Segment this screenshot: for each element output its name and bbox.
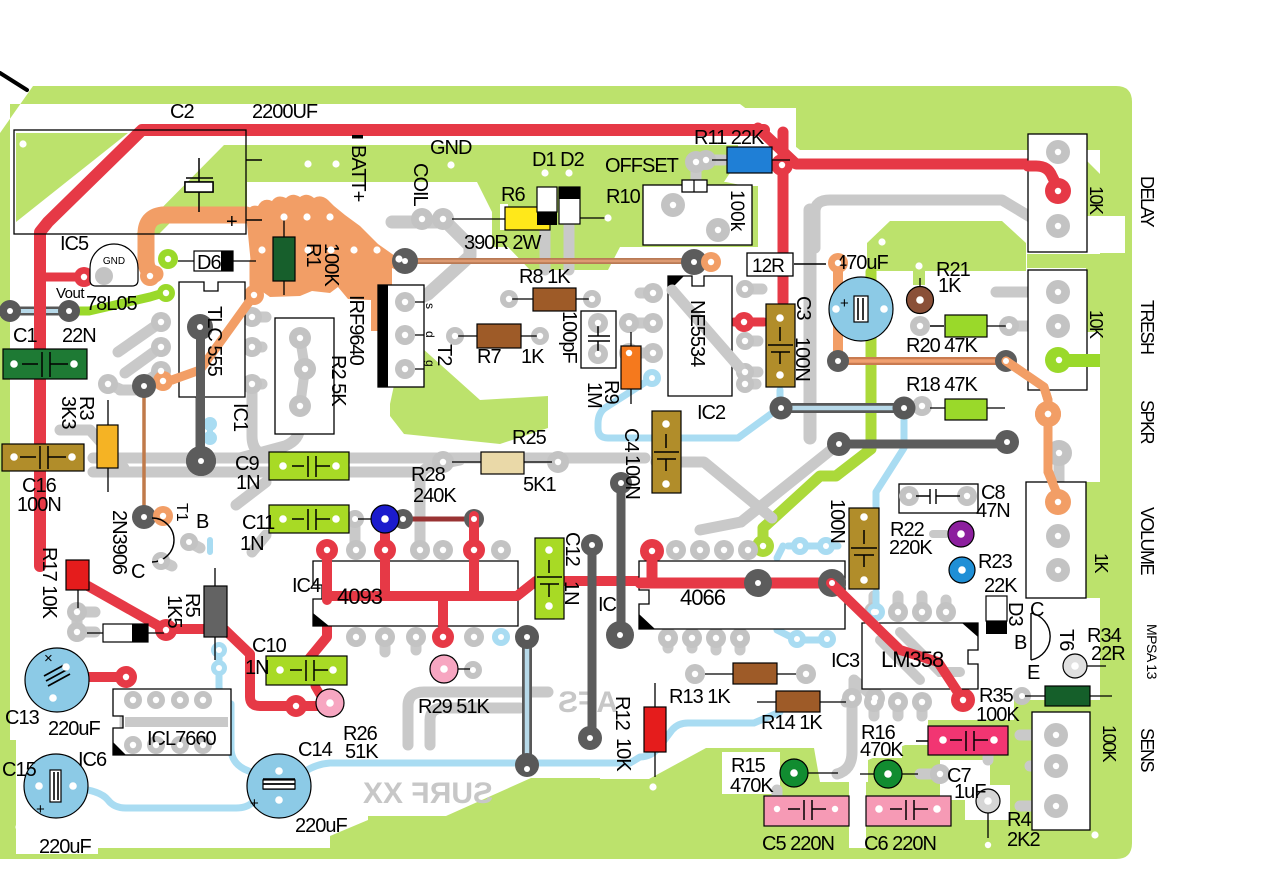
svg-text:MPSA 13: MPSA 13 <box>1144 624 1160 680</box>
svg-text:+: + <box>250 795 259 812</box>
svg-text:100K: 100K <box>1099 725 1119 763</box>
svg-text:R7: R7 <box>477 346 501 368</box>
svg-text:R28: R28 <box>411 464 446 486</box>
svg-text:R23: R23 <box>978 551 1013 573</box>
svg-text:10K: 10K <box>612 738 634 772</box>
svg-text:1uF: 1uF <box>954 781 986 803</box>
svg-text:R6: R6 <box>501 184 525 206</box>
svg-text:D1 D2: D1 D2 <box>532 149 585 171</box>
svg-text:GND: GND <box>430 137 472 159</box>
svg-text:22R: 22R <box>1091 643 1125 665</box>
svg-text:R14 1K: R14 1K <box>761 712 823 734</box>
svg-text:COIL: COIL <box>409 163 431 207</box>
svg-text:R13 1K: R13 1K <box>669 686 731 708</box>
svg-text:220uF: 220uF <box>295 815 347 837</box>
svg-text:1M: 1M <box>583 382 605 408</box>
svg-text:3K3: 3K3 <box>57 396 79 429</box>
svg-text:2200UF: 2200UF <box>252 101 318 123</box>
svg-text:1N: 1N <box>245 657 269 679</box>
svg-text:g: g <box>423 360 437 367</box>
svg-text:OFFSET: OFFSET <box>605 155 679 177</box>
svg-text:C6 220N: C6 220N <box>864 833 936 855</box>
svg-text:IRF9640: IRF9640 <box>345 295 367 366</box>
svg-text:220K: 220K <box>889 537 933 559</box>
svg-text:C10: C10 <box>252 635 287 657</box>
svg-text:100pF: 100pF <box>558 311 580 363</box>
svg-text:IC6: IC6 <box>78 749 107 771</box>
svg-text:220uF: 220uF <box>39 836 91 858</box>
svg-text:5K1: 5K1 <box>523 474 556 496</box>
svg-text:IC1: IC1 <box>229 403 251 432</box>
svg-text:2N3906: 2N3906 <box>108 510 130 575</box>
svg-text:GND: GND <box>103 256 125 267</box>
svg-text:R18 47K: R18 47K <box>906 374 978 396</box>
svg-text:IC3: IC3 <box>831 650 860 672</box>
svg-text:s: s <box>423 303 437 309</box>
svg-text:SENS: SENS <box>1137 728 1157 773</box>
svg-text:R8 1K: R8 1K <box>519 266 571 288</box>
svg-text:4093: 4093 <box>337 584 383 609</box>
svg-text:R15: R15 <box>731 755 766 777</box>
svg-text:d: d <box>423 331 437 338</box>
svg-text:100N: 100N <box>791 337 813 381</box>
svg-text:1K: 1K <box>1091 553 1111 574</box>
svg-text:+: + <box>36 801 45 818</box>
svg-text:R10: R10 <box>606 186 641 208</box>
svg-text:22K: 22K <box>984 575 1018 597</box>
svg-text:IC5: IC5 <box>60 233 89 255</box>
svg-text:C: C <box>131 561 145 583</box>
svg-text:1K: 1K <box>521 346 545 368</box>
svg-text:1N: 1N <box>236 472 260 494</box>
svg-text:1K: 1K <box>938 275 962 297</box>
svg-text:22N: 22N <box>62 325 96 347</box>
svg-text:+: + <box>226 211 237 233</box>
svg-text:Vout: Vout <box>56 285 85 302</box>
svg-text:78L05: 78L05 <box>86 293 137 315</box>
svg-text:470uF: 470uF <box>836 252 888 274</box>
svg-text:R11 22K: R11 22K <box>694 127 765 149</box>
svg-text:470K: 470K <box>860 739 904 761</box>
svg-text:1N: 1N <box>560 581 582 605</box>
svg-text:R17 10K: R17 10K <box>38 547 60 619</box>
svg-text:4066: 4066 <box>680 585 726 610</box>
svg-text:T6: T6 <box>1055 629 1077 651</box>
svg-text:C11: C11 <box>242 512 275 534</box>
svg-text:R12: R12 <box>611 696 633 731</box>
svg-text:12R: 12R <box>752 256 784 277</box>
svg-text:IC: IC <box>598 594 617 616</box>
svg-text:TRESH: TRESH <box>1137 300 1157 354</box>
svg-text:100k: 100k <box>726 190 747 232</box>
svg-text:C4: C4 <box>620 428 642 452</box>
svg-text:100N: 100N <box>826 499 848 543</box>
svg-text:DELAY: DELAY <box>1137 176 1157 228</box>
svg-text:C15: C15 <box>2 759 37 781</box>
svg-text:R29 51K: R29 51K <box>418 696 490 718</box>
svg-text:C14: C14 <box>298 739 333 761</box>
svg-text:C1: C1 <box>13 325 37 347</box>
svg-text:LM358: LM358 <box>881 647 944 672</box>
svg-text:BATT+: BATT+ <box>347 145 369 202</box>
svg-text:390R 2W: 390R 2W <box>464 232 541 254</box>
svg-text:C13: C13 <box>5 707 40 729</box>
svg-text:C2: C2 <box>170 101 194 123</box>
svg-text:D3: D3 <box>1004 602 1026 626</box>
svg-text:×: × <box>44 650 52 667</box>
svg-text:1N: 1N <box>240 533 264 555</box>
svg-text:1K5: 1K5 <box>163 595 185 628</box>
svg-text:VOLUME: VOLUME <box>1137 507 1157 576</box>
svg-text:IC4: IC4 <box>292 575 321 597</box>
svg-text:470K: 470K <box>730 775 774 797</box>
svg-text:TLC 555: TLC 555 <box>203 306 225 377</box>
svg-text:10K: 10K <box>1086 310 1106 339</box>
svg-text:+: + <box>840 295 849 312</box>
svg-text:10K: 10K <box>1086 186 1106 215</box>
svg-text:R4: R4 <box>1007 809 1031 831</box>
svg-text:E: E <box>1027 662 1040 684</box>
svg-text:R25: R25 <box>512 427 547 449</box>
svg-text:100K: 100K <box>976 704 1020 726</box>
svg-text:SPKR: SPKR <box>1137 400 1157 445</box>
svg-text:51K: 51K <box>345 741 379 763</box>
svg-text:2K2: 2K2 <box>1007 829 1040 851</box>
svg-text:220uF: 220uF <box>48 718 100 740</box>
svg-text:D6: D6 <box>197 252 221 274</box>
svg-text:SURF XX: SURF XX <box>363 777 493 810</box>
svg-text:R20 47K: R20 47K <box>906 335 978 357</box>
svg-text:T1: T1 <box>173 503 190 522</box>
svg-text:C5 220N: C5 220N <box>762 833 834 855</box>
svg-text:100N: 100N <box>621 455 643 499</box>
svg-text:240K: 240K <box>413 485 457 507</box>
svg-text:IC2: IC2 <box>697 402 726 424</box>
svg-text:B: B <box>1014 632 1027 654</box>
svg-text:B: B <box>196 511 209 533</box>
svg-text:NE5534: NE5534 <box>686 300 708 367</box>
svg-text:C: C <box>1030 599 1044 621</box>
svg-text:100N: 100N <box>17 494 61 516</box>
svg-text:47N: 47N <box>976 500 1010 522</box>
svg-text:C12: C12 <box>561 532 583 567</box>
svg-text:C3: C3 <box>792 296 814 320</box>
